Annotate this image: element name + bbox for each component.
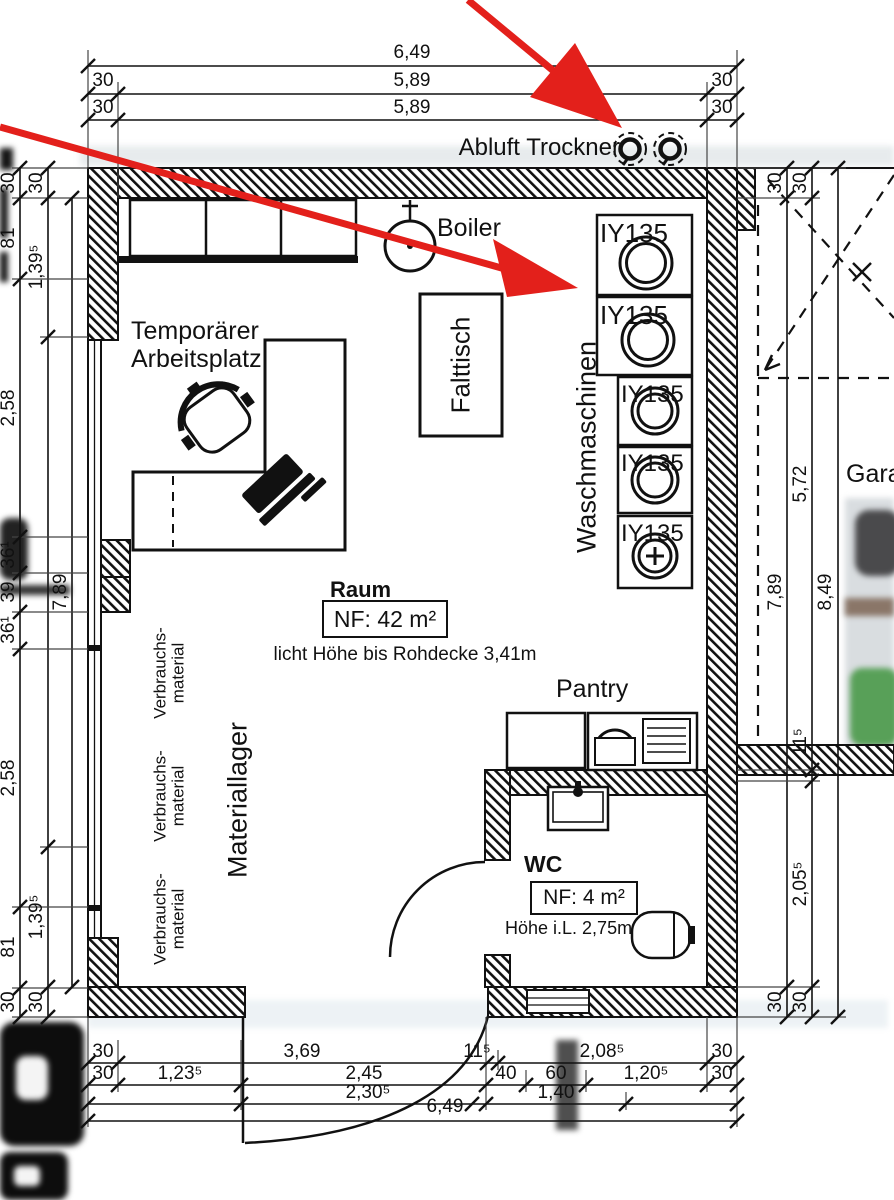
shelf-label-2-line2: material: [169, 766, 188, 826]
vent-icons: [614, 133, 686, 165]
cabinet-row: [118, 200, 358, 263]
dim-top-r3-1: 5,89: [394, 97, 431, 119]
red-arrow-2-head: [493, 239, 578, 297]
dim-l-total: 7,89: [50, 574, 72, 611]
floor-plan-canvas: Abluft Trockner Boiler IY135 IY135 IY135…: [0, 0, 894, 1200]
storage-label: Materiallager: [223, 722, 254, 878]
garage-dashed-marks: [758, 175, 894, 742]
dim-b2-5: 1,20⁵: [624, 1063, 669, 1085]
wc-height-note: Höhe i.L. 2,75m: [505, 918, 632, 939]
room-height-note: licht Höhe bis Rohdecke 3,41m: [274, 644, 537, 666]
shelf-label-1-line1: Verbrauchs-: [151, 627, 170, 719]
dim-l-i2: 1,39⁵: [26, 895, 48, 940]
dim-b1-4: 30: [711, 1041, 732, 1063]
office-chair-icon: [159, 361, 266, 465]
dim-l-o6: 2,58: [0, 760, 20, 797]
dim-top-r2-2: 30: [711, 70, 732, 92]
dim-b1-1: 3,69: [284, 1041, 321, 1063]
window-left: [88, 340, 101, 938]
wc-basin: [548, 781, 608, 830]
machine-tag-5: IY135: [621, 520, 684, 548]
boiler-label: Boiler: [437, 214, 501, 243]
window-wc-bottom: [527, 990, 589, 1013]
vent-label: Abluft Trockner: [395, 134, 620, 162]
dim-bottom-total: 6,49: [427, 1096, 464, 1118]
workspace-label: Temporärer Arbeitsplatz: [131, 317, 262, 373]
dim-b1-0: 30: [92, 1041, 113, 1063]
red-arrow-1-head: [530, 43, 622, 128]
dim-b1-2: 11⁵: [463, 1041, 491, 1063]
shelf-label-1-line2: material: [169, 643, 188, 703]
dim-top-r3-2: 30: [711, 97, 732, 119]
shelf-label-2: Verbrauchs- material: [152, 750, 189, 842]
wc-area: NF: 4 m²: [543, 886, 625, 910]
dim-r2-1: 5,72: [790, 466, 812, 503]
machine-tag-2: IY135: [600, 300, 668, 331]
garage-label: Garage: [846, 460, 894, 489]
dim-r2-2: 11⁵: [790, 728, 812, 756]
dim-r2-3: 2,05⁵: [790, 862, 812, 907]
shelf-label-1: Verbrauchs- material: [152, 627, 189, 719]
dim-l-i1: 1,39⁵: [26, 245, 48, 290]
dim-l-i3: 30: [26, 991, 48, 1012]
workspace-label-line1: Temporärer: [131, 317, 259, 345]
wc-area-box: NF: 4 m²: [530, 881, 638, 915]
workspace-label-line2: Arbeitsplatz: [131, 345, 262, 373]
dim-r2-0: 30: [790, 172, 812, 193]
dim-l-o1: 81: [0, 227, 20, 248]
dim-l-o0: 30: [0, 172, 20, 193]
dim-r1-2: 30: [765, 991, 787, 1012]
dim-b3-0: 2,30⁵: [346, 1082, 391, 1104]
dim-top-total: 6,49: [394, 42, 431, 64]
shelf-label-3-line2: material: [169, 889, 188, 949]
shelf-label-3: Verbrauchs- material: [152, 873, 189, 965]
dim-l-o7: 81: [0, 936, 20, 957]
dim-l-o2: 2,58: [0, 390, 20, 427]
dim-b2-6: 30: [711, 1063, 732, 1085]
machine-tag-3: IY135: [621, 381, 684, 409]
dim-r1-1: 7,89: [765, 574, 787, 611]
dim-l-o3: 36¹: [0, 541, 20, 568]
dim-r1-0: 30: [765, 172, 787, 193]
dim-b2-3: 40: [495, 1063, 516, 1085]
machine-tag-4: IY135: [621, 450, 684, 478]
wc-toilet: [632, 912, 695, 958]
room-area: NF: 42 m²: [334, 606, 436, 633]
shelf-label-2-line1: Verbrauchs-: [151, 750, 170, 842]
red-arrow-1-shaft: [468, 0, 556, 73]
dim-l-o5: 36¹: [0, 616, 20, 643]
dim-l-o8: 30: [0, 991, 20, 1012]
washers-label: Waschmaschinen: [572, 341, 603, 553]
dim-b2-1: 1,23⁵: [158, 1063, 203, 1085]
dim-l-i0: 30: [26, 172, 48, 193]
dim-top-r2-1: 5,89: [394, 70, 431, 92]
dim-r-total: 8,49: [815, 574, 837, 611]
pantry-counter: [507, 713, 697, 770]
dim-top-r3-0: 30: [92, 97, 113, 119]
machine-tag-1: IY135: [600, 218, 668, 249]
wc-name: WC: [524, 851, 562, 878]
room-area-box: NF: 42 m²: [322, 600, 448, 638]
shelf-label-3-line1: Verbrauchs-: [151, 873, 170, 965]
dim-r2-4: 30: [790, 991, 812, 1012]
dim-l-o4: 39: [0, 581, 20, 602]
pantry-label: Pantry: [556, 675, 628, 704]
folding-table-label: Falttisch: [446, 317, 477, 414]
dim-b2-0: 30: [92, 1063, 113, 1085]
dim-top-r2-0: 30: [92, 70, 113, 92]
dim-b1-3: 2,08⁵: [580, 1041, 625, 1063]
dim-b3-1: 1,40: [538, 1082, 575, 1104]
